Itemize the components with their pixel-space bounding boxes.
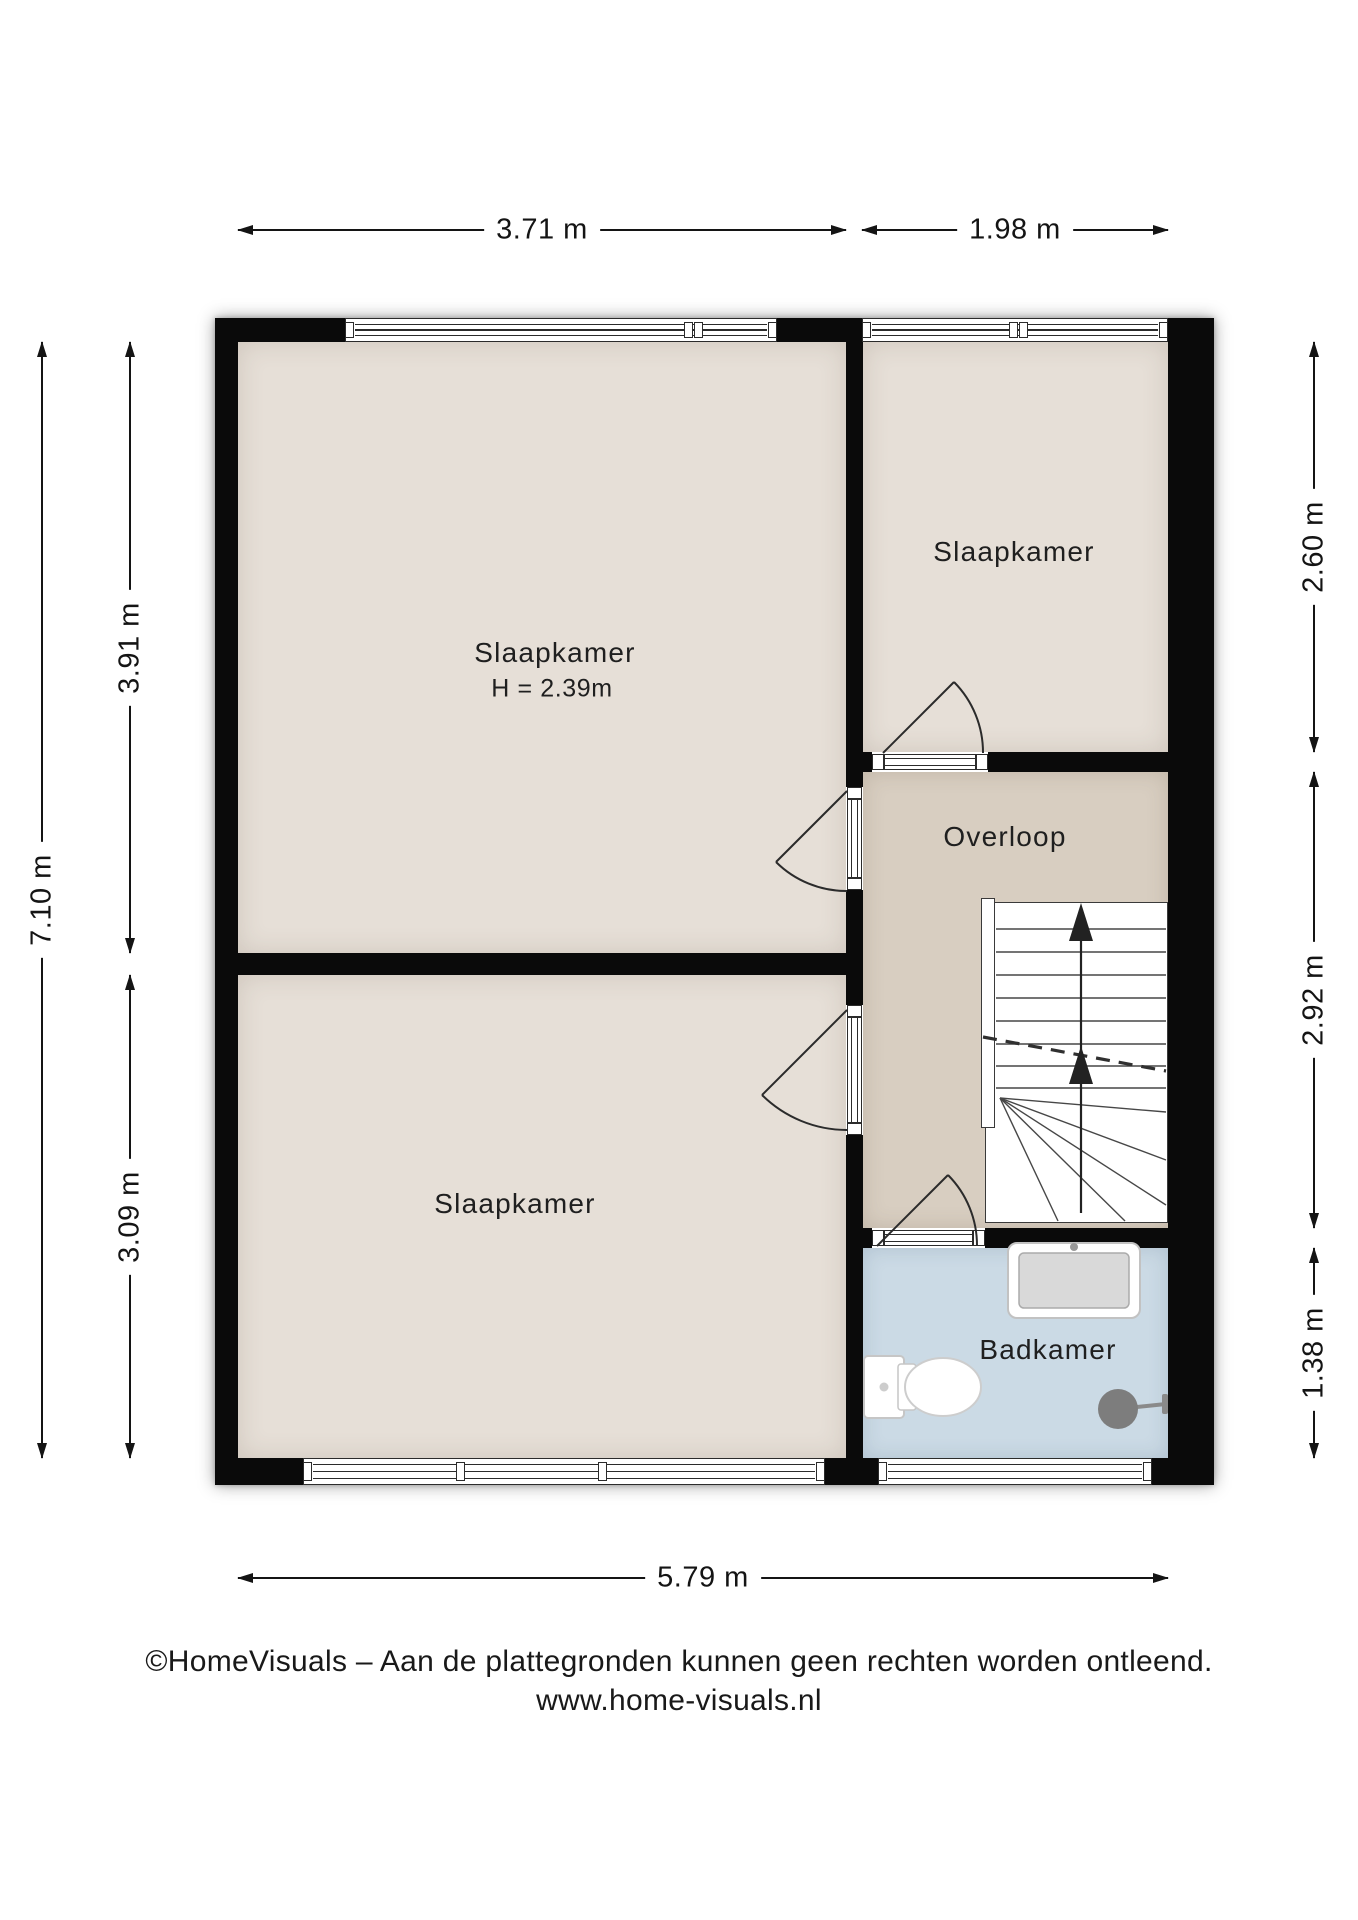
door-frame-block <box>847 787 862 799</box>
window-frame-end <box>816 1462 825 1481</box>
window-mullion <box>1009 322 1018 338</box>
room-ceiling-height: H = 2.39m <box>491 675 612 704</box>
floorplan-page: { "page": {"width": 1358, "height": 1920… <box>0 0 1358 1920</box>
dimension-label: 1.98 m <box>957 214 1073 247</box>
door-leaf <box>847 1017 862 1123</box>
door-frame-block <box>872 1230 884 1246</box>
window-glazing <box>313 1464 815 1479</box>
room-label-bathroom: Badkamer <box>979 1334 1116 1366</box>
room-label-bedroom-top-right: Slaapkamer <box>933 536 1094 568</box>
dimension-right-lower: 1.38 m <box>1313 1248 1315 1458</box>
dimension-label: 1.38 m <box>1298 1295 1331 1411</box>
wall-top-segment <box>215 318 345 342</box>
door-frame-block <box>847 878 862 890</box>
dimension-right-upper: 2.60 m <box>1313 342 1315 752</box>
window-frame-end <box>768 322 777 338</box>
window-frame-end <box>1159 322 1168 338</box>
wall-middle-segment <box>846 890 863 1005</box>
wall-landing-top <box>863 752 872 772</box>
door-frame-block <box>847 1005 862 1017</box>
dimension-left-upper: 3.91 m <box>129 342 131 953</box>
window <box>878 1458 1152 1485</box>
wall-bathroom-top <box>863 1228 872 1248</box>
window-frame-end <box>303 1462 312 1481</box>
footer-copyright: ©HomeVisuals – Aan de plattegronden kunn… <box>0 1645 1358 1679</box>
door-leaf <box>847 799 862 878</box>
dimension-label: 7.10 m <box>26 842 59 958</box>
wall-top-segment <box>777 318 863 342</box>
window-glazing <box>888 1464 1142 1479</box>
wall-bottom-segment <box>215 1458 303 1485</box>
door-frame-block <box>973 1230 985 1246</box>
wall-bathroom-top <box>985 1228 1168 1248</box>
room-label-bedroom-main: Slaapkamer <box>474 637 635 669</box>
window-mullion <box>684 322 693 338</box>
window-frame-end <box>862 322 871 338</box>
door-leaf <box>884 754 976 770</box>
stairs-stringer <box>981 898 995 1128</box>
window-frame-end <box>878 1462 887 1481</box>
room-label-landing: Overloop <box>943 821 1066 853</box>
window-mullion <box>1019 322 1028 338</box>
door-frame-block <box>847 1123 862 1135</box>
window-glazing <box>355 324 767 336</box>
window-mullion <box>598 1462 607 1481</box>
door-frame-block <box>976 754 988 770</box>
wall-left <box>215 318 238 1485</box>
wall-middle-segment <box>846 1135 863 1458</box>
door-leaf <box>884 1230 973 1246</box>
dimension-right-middle: 2.92 m <box>1313 772 1315 1228</box>
footer-url: www.home-visuals.nl <box>0 1684 1358 1718</box>
window <box>862 318 1168 342</box>
window-mullion <box>456 1462 465 1481</box>
wall-bottom-segment <box>825 1458 878 1485</box>
wall-right <box>1168 318 1214 1485</box>
dimension-label: 3.71 m <box>484 214 600 247</box>
footer: ©HomeVisuals – Aan de plattegronden kunn… <box>0 1645 1358 1718</box>
dimension-label: 2.92 m <box>1298 942 1331 1058</box>
dimension-label: 5.79 m <box>645 1562 761 1595</box>
wall-bottom-segment <box>1152 1458 1214 1485</box>
dimension-label: 3.09 m <box>114 1159 147 1275</box>
window-mullion <box>694 322 703 338</box>
floorplan: Slaapkamer H = 2.39m Slaapkamer Overloop… <box>215 318 1214 1485</box>
window <box>303 1458 825 1485</box>
room-label-bedroom-bottom: Slaapkamer <box>434 1188 595 1220</box>
window-frame-end <box>345 322 354 338</box>
stairs <box>985 902 1168 1223</box>
dimension-left-lower: 3.09 m <box>129 975 131 1458</box>
dimension-label: 2.60 m <box>1298 489 1331 605</box>
door-frame-block <box>872 754 884 770</box>
dimension-top-right: 1.98 m <box>862 229 1168 231</box>
wall-landing-top <box>988 752 1168 772</box>
dimension-top-left: 3.71 m <box>238 229 846 231</box>
dimension-left-total: 7.10 m <box>41 342 43 1458</box>
wall-bedrooms-divider <box>238 953 846 975</box>
window-frame-end <box>1143 1462 1152 1481</box>
window <box>345 318 777 342</box>
dimension-bottom: 5.79 m <box>238 1577 1168 1579</box>
wall-middle-segment <box>846 342 863 787</box>
dimension-label: 3.91 m <box>114 590 147 706</box>
